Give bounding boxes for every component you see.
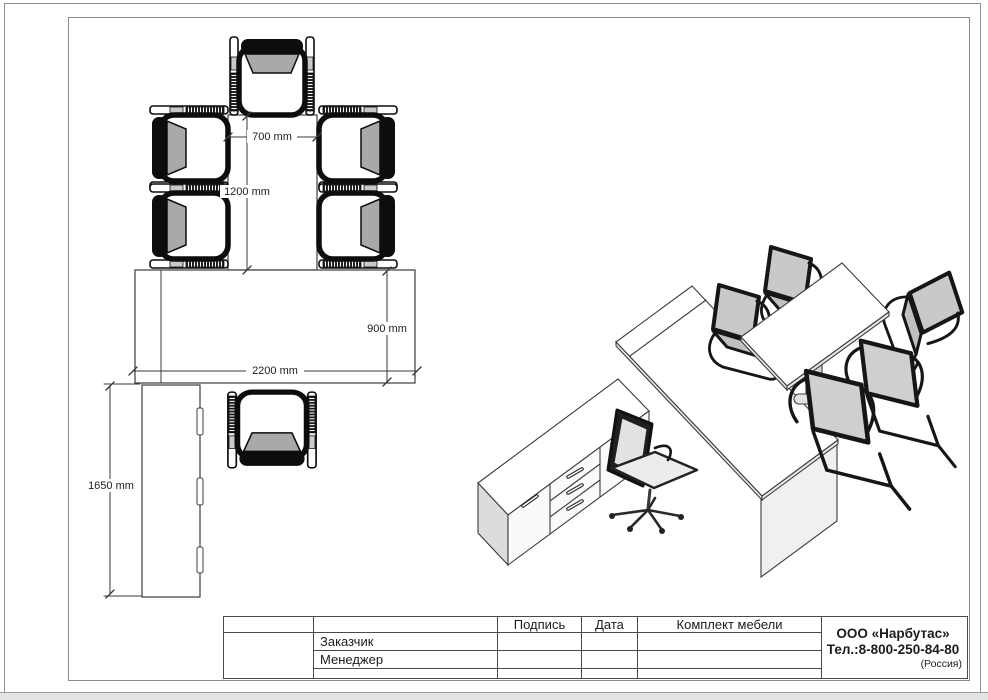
visitor-chair-plan-left-2 [150, 184, 228, 268]
tb-project-title: Комплект мебели [638, 617, 821, 632]
visitor-chair-plan-top [230, 37, 314, 115]
tb-date-header: Дата [582, 617, 637, 632]
company-phone: Тел.:8-800-250-84-80 [824, 642, 962, 658]
company-name: ООО «Нарбутас» [824, 626, 962, 642]
tb-company-info: ООО «Нарбутас» Тел.:8-800-250-84-80 (Рос… [822, 617, 967, 678]
tb-customer-date [638, 633, 821, 650]
visitor-chair-plan-right-1 [319, 106, 397, 190]
tb-manager-date [638, 651, 821, 668]
company-country: (Россия) [824, 658, 962, 670]
plan-view: 700 mm 1200 mm 900 mm 2200 mm 1650 mm [85, 37, 421, 598]
iso-view [478, 247, 983, 577]
tb-manager-signature [582, 651, 637, 668]
sideboard-plan [142, 385, 203, 597]
tb-empty-b1 [314, 617, 497, 632]
tb-project-notes [224, 633, 313, 678]
chair-base-star [612, 498, 680, 530]
tb-customer-label: Заказчик [314, 633, 497, 650]
furniture-drawing: 700 mm 1200 mm 900 mm 2200 mm 1650 mm [0, 0, 988, 700]
sheet-bottom-edge [0, 692, 988, 700]
drawing-sheet: 700 mm 1200 mm 900 mm 2200 mm 1650 mm [0, 0, 988, 700]
tb-manager-value [498, 651, 581, 668]
tb-signature-header: Подпись [498, 617, 581, 632]
manager-chair-plan [228, 392, 316, 468]
dim-1650: 1650 mm [88, 480, 134, 492]
office-chair-3d [608, 410, 697, 534]
dim-1200: 1200 mm [224, 186, 270, 198]
tb-manager-label: Менеджер [314, 651, 497, 668]
tb-empty-a4 [314, 669, 497, 678]
dim-900: 900 mm [367, 323, 407, 335]
dim-2200: 2200 mm [252, 365, 298, 377]
tb-customer-value [498, 633, 581, 650]
tb-empty-c4 [582, 669, 637, 678]
tb-customer-signature [582, 633, 637, 650]
tb-empty-a1 [224, 617, 313, 632]
visitor-chair-plan-left-1 [150, 106, 228, 190]
title-block: Подпись Дата Комплект мебели ООО «Нарбут… [223, 616, 968, 679]
visitor-chair-plan-right-2 [319, 184, 397, 268]
tb-empty-b4 [498, 669, 581, 678]
dim-700: 700 mm [252, 131, 292, 143]
tb-empty-d4 [638, 669, 821, 678]
